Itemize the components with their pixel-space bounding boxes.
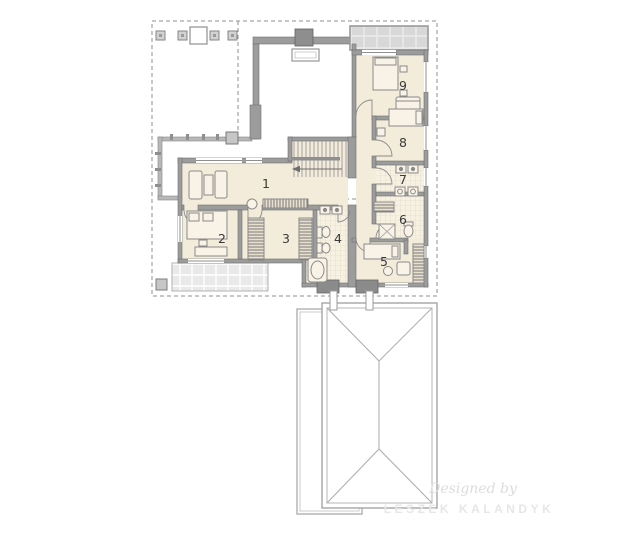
watermark-script: Designed by <box>428 481 518 497</box>
armchair <box>397 262 410 275</box>
toilet-tank <box>317 227 322 238</box>
wall <box>372 156 376 168</box>
connector-post <box>366 291 373 310</box>
dryer <box>408 187 418 196</box>
shelf <box>374 202 394 212</box>
nightstand <box>400 66 407 72</box>
wall <box>348 205 356 287</box>
pergola-posts <box>156 27 237 44</box>
upper-terrace <box>350 26 428 50</box>
pillow <box>392 246 398 257</box>
wall <box>424 92 428 126</box>
connector-post <box>330 291 337 310</box>
wall <box>352 44 356 137</box>
sofa <box>189 171 202 199</box>
wall <box>376 161 424 165</box>
room-3-label: 3 <box>282 231 290 246</box>
wall <box>288 137 352 141</box>
balcony-post <box>226 132 238 144</box>
floor-plan-page: 1 2 3 4 5 6 7 8 9 Designed by LESZEK KAL… <box>0 0 638 556</box>
wall <box>348 137 356 178</box>
sideboard <box>263 199 308 208</box>
wardrobe <box>248 218 264 260</box>
chair <box>199 240 207 246</box>
wall <box>396 50 428 55</box>
bathtub-basin <box>311 261 324 279</box>
room-6-label: 6 <box>399 212 407 227</box>
floor-plan-drawing: 1 2 3 4 5 6 7 8 9 Designed by LESZEK KAL… <box>0 0 638 556</box>
pergola-column <box>190 27 207 44</box>
toilet <box>322 227 330 238</box>
wall <box>238 210 242 259</box>
skylight <box>292 49 319 61</box>
wall <box>404 240 408 254</box>
wardrobe <box>299 218 312 260</box>
room-5-label: 5 <box>380 254 388 269</box>
pillow <box>189 213 199 221</box>
wall <box>424 186 428 246</box>
wall <box>352 50 362 55</box>
lower-terrace <box>172 263 268 291</box>
wall <box>198 205 248 210</box>
wall <box>424 258 428 287</box>
wall <box>372 116 376 140</box>
sofa <box>396 97 420 110</box>
wing-wall-base <box>250 105 261 139</box>
room-8-label: 8 <box>399 135 407 150</box>
balcony-rail-bottom <box>158 196 180 200</box>
plant <box>247 199 257 209</box>
bidet <box>322 243 330 253</box>
washing-machine <box>395 187 405 196</box>
sofa <box>215 171 227 198</box>
wardrobe <box>413 244 424 283</box>
garage-roof <box>297 291 437 514</box>
room-2-label: 2 <box>218 231 226 246</box>
pillow <box>416 111 422 124</box>
pillow <box>375 58 396 65</box>
desk <box>195 247 227 256</box>
nightstand <box>377 128 385 136</box>
bidet-tank <box>317 243 322 253</box>
wall <box>288 137 292 161</box>
wall <box>424 50 428 62</box>
room-4-label: 4 <box>334 231 342 246</box>
terrace-post <box>156 279 167 290</box>
room-1-label: 1 <box>262 176 270 191</box>
room-9-label: 9 <box>399 78 407 93</box>
room-7-label: 7 <box>399 172 407 187</box>
wall <box>178 158 182 263</box>
coffee-table <box>204 175 213 195</box>
pillow <box>203 213 213 221</box>
watermark-name: LESZEK KALANDYK <box>384 502 555 516</box>
stair-handrail <box>292 157 340 161</box>
wall <box>313 210 317 259</box>
chimney <box>295 29 313 46</box>
stair-floor <box>290 141 348 181</box>
wall <box>424 150 428 168</box>
